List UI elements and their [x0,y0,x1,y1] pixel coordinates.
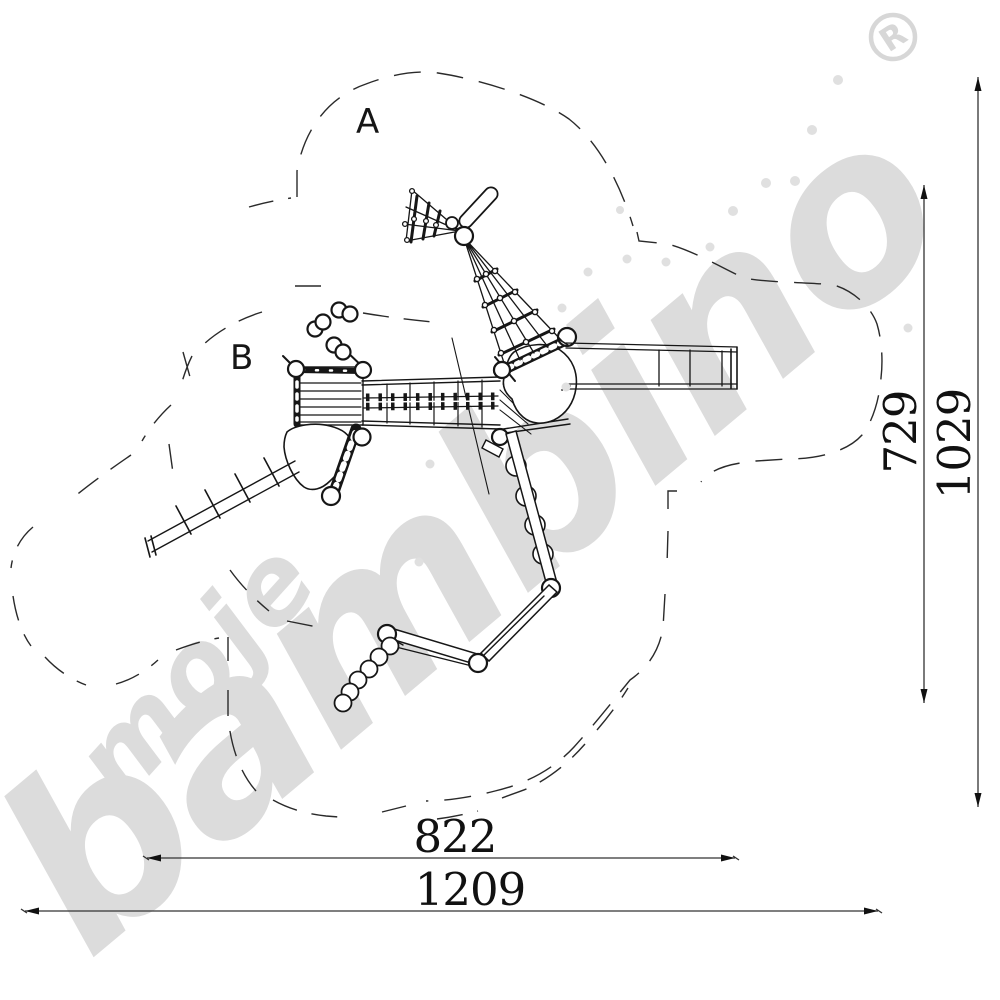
bridge-posts [494,362,510,378]
registered-trademark-icon: R [871,14,915,59]
dimension-822-label: 822 [414,810,497,863]
dimension-729-label: 729 [874,391,927,474]
mast-top-joint [446,194,491,245]
drawing-sheet: moje bambino R [0,0,1000,1000]
dimension-1029: 1029 [928,77,981,807]
stepping-stones [308,303,358,360]
watermark: moje bambino R [0,14,995,1000]
zone-label-b: B [230,338,253,378]
left-platform [283,349,371,425]
dimension-1209-label: 1209 [415,863,526,916]
zone-label-a: A [356,102,379,142]
dimension-1029-label: 1029 [928,389,981,500]
climbing-net-small [403,189,460,243]
playground-plan-drawing: moje bambino R [0,0,1000,1000]
